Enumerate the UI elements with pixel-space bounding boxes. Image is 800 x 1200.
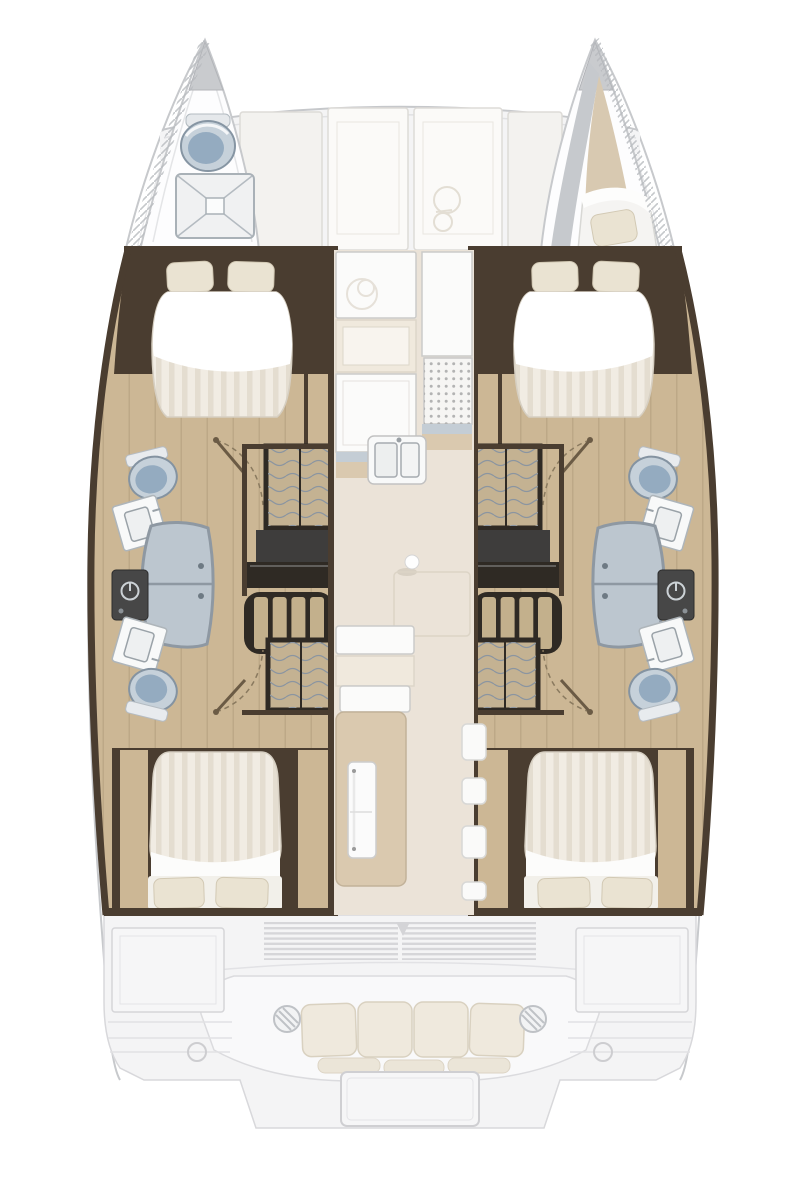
back-cushion <box>358 1002 412 1057</box>
step-tab <box>462 778 486 804</box>
starboard-hull <box>468 246 715 916</box>
louver-vent-starboard <box>402 922 536 960</box>
door-hinge <box>213 709 219 715</box>
galley-counter <box>422 252 472 356</box>
pillow <box>166 261 214 293</box>
saloon <box>334 250 486 915</box>
wardrobe-locker-aft <box>268 640 334 710</box>
counter-base <box>422 434 472 450</box>
port-hull <box>91 246 338 916</box>
back-cushion <box>301 1003 357 1057</box>
pillow <box>153 877 204 909</box>
step-tab <box>462 724 486 760</box>
pillow <box>215 877 268 909</box>
bed-mattress <box>150 752 281 869</box>
partition <box>242 446 247 596</box>
seat-panel <box>414 108 502 250</box>
galley <box>336 252 472 484</box>
stove-grate <box>424 358 472 424</box>
sink-basin <box>401 443 419 477</box>
wardrobe-locker-forward <box>266 446 334 528</box>
table-leg <box>405 555 419 569</box>
step-tab <box>462 882 486 900</box>
seat-cushion <box>318 1058 380 1073</box>
faucet <box>397 438 402 443</box>
cockpit-table <box>341 1072 479 1126</box>
seat-cushion <box>448 1058 510 1073</box>
chart-desk <box>246 530 334 588</box>
louver-vent-port <box>264 922 398 960</box>
door-hinge <box>213 437 219 443</box>
double-sink <box>368 436 426 484</box>
cockpit <box>104 915 696 1128</box>
back-cushion <box>414 1002 468 1057</box>
back-cushion <box>469 1003 525 1057</box>
pillow <box>590 208 639 247</box>
sink-basin <box>375 443 397 477</box>
fridge <box>348 762 376 858</box>
bed-sheet <box>153 292 292 372</box>
fridge-cabinet <box>336 712 406 886</box>
catamaran-floor-plan <box>0 0 800 1200</box>
side-shelf <box>120 750 148 910</box>
counter-edge <box>422 424 472 434</box>
shower-handle <box>198 593 204 599</box>
pillow <box>227 261 274 293</box>
seat-panel <box>328 108 408 250</box>
worktop-inner <box>343 327 409 365</box>
bow-shower-tray <box>176 174 254 238</box>
bow-toilet <box>181 114 235 171</box>
shower-drain <box>206 198 224 214</box>
wardrobe-strip-edge <box>304 374 308 450</box>
aft-cabin <box>112 748 334 915</box>
washer-unit <box>112 570 148 620</box>
shower-handle <box>198 563 204 569</box>
galley-counter <box>336 252 416 318</box>
aft-bulkhead <box>104 908 338 916</box>
forward-bulkhead <box>124 246 338 253</box>
step-tab <box>462 826 486 858</box>
partition <box>242 710 336 715</box>
armrest-ring-port <box>274 1006 300 1032</box>
armrest-ring-starboard <box>520 1006 546 1032</box>
partition <box>242 444 336 449</box>
saloon-aft-bench <box>336 626 414 712</box>
